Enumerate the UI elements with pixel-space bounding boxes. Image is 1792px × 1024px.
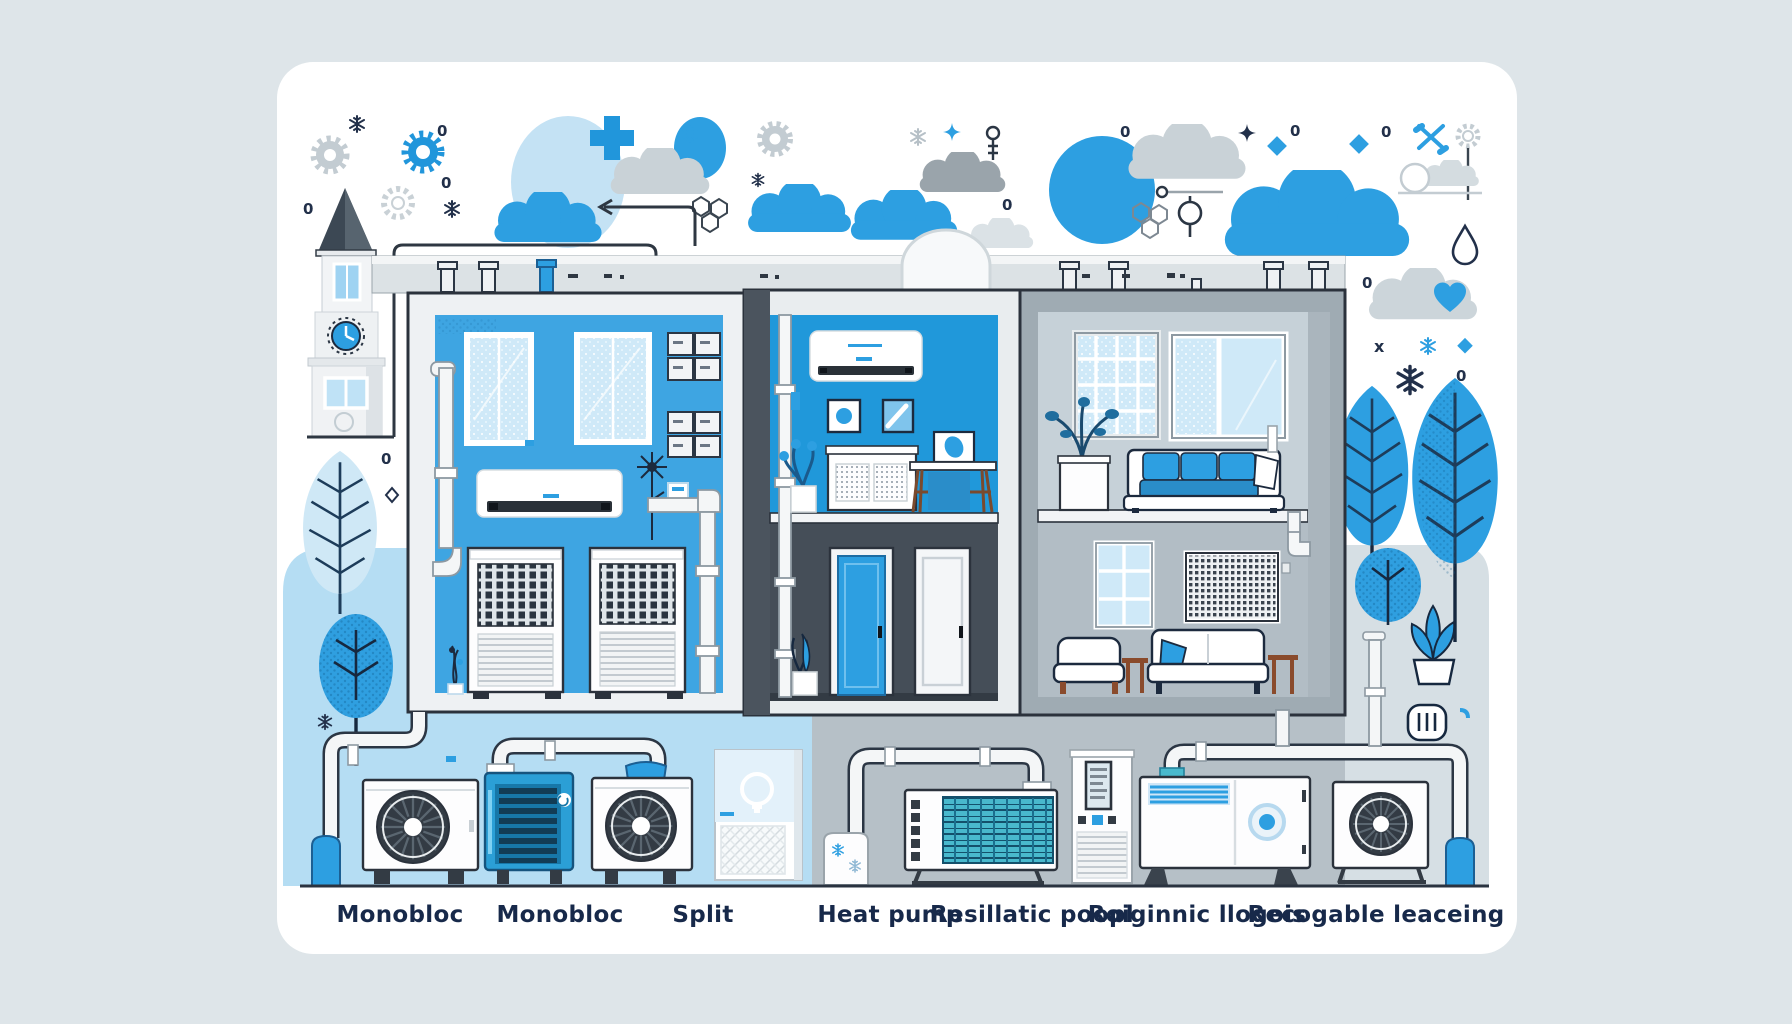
control-tower-unit	[1070, 750, 1134, 883]
indoor-outdoor-unit	[590, 548, 685, 699]
zero-glyph: 0	[1362, 274, 1372, 292]
heat-pump-infographic: 0 0 0 0 0 0 0 0 0 0 x	[0, 0, 1792, 1024]
roof-highlight	[372, 256, 1345, 264]
zero-glyph: 0	[303, 200, 313, 218]
window	[577, 335, 649, 442]
zero-glyph: 0	[441, 174, 451, 192]
pump-tank	[1446, 838, 1474, 886]
split-wall-ac-unit	[810, 331, 922, 381]
indoor-outdoor-unit	[468, 548, 563, 699]
split-outdoor-unit	[592, 778, 692, 884]
chair	[928, 472, 970, 510]
right-side-band	[1308, 312, 1330, 697]
cabinet	[826, 446, 918, 510]
picture-frame	[883, 400, 913, 432]
section-monobloc	[408, 293, 744, 712]
zero-glyph: 0	[1290, 122, 1300, 140]
gear-icon	[760, 124, 790, 154]
label-monobloc-2: Monobloc	[496, 902, 623, 928]
window-large	[1172, 335, 1285, 438]
hydro-cabinet-unit	[715, 750, 802, 880]
zero-glyph: 0	[381, 450, 391, 468]
label-recogable: Recogable leaceing	[1247, 902, 1504, 928]
roof-pipe-arch	[902, 230, 990, 292]
monobloc-unit-blue	[485, 773, 573, 884]
x-glyph: x	[1374, 337, 1385, 356]
vent-grille	[1186, 553, 1290, 621]
pillow	[1254, 455, 1278, 489]
zero-glyph: 0	[1002, 196, 1012, 214]
pump-tank	[312, 836, 340, 886]
building	[372, 230, 1345, 715]
window-grid	[1075, 333, 1158, 437]
middle-floor	[770, 513, 998, 523]
door-white	[915, 548, 970, 695]
zero-glyph: 0	[1381, 123, 1391, 141]
outdoor-fan-unit	[1333, 782, 1428, 883]
label-split: Split	[672, 902, 733, 928]
right-floor	[1038, 510, 1308, 522]
hydro-module-unit	[1140, 777, 1310, 885]
section-rooms	[1020, 290, 1345, 715]
candle	[1268, 426, 1277, 452]
label-monobloc-1: Monobloc	[336, 902, 463, 928]
wall-ac-unit	[477, 470, 622, 517]
monobloc-unit	[363, 780, 478, 884]
door-blue	[830, 548, 893, 695]
section-split	[744, 290, 1020, 715]
window-small	[1096, 543, 1152, 627]
buffer-tank	[824, 833, 868, 885]
illustration-stage: 0 0 0 0 0 0 0 0 0 0 x	[0, 0, 1792, 1024]
picture-frame	[828, 400, 860, 432]
zero-glyph: 0	[437, 122, 447, 140]
bottom-labels: Monobloc Monobloc Split Heat pump Resill…	[336, 902, 1504, 928]
middle-divider-wall	[744, 290, 770, 715]
heat-pump-unit	[905, 790, 1057, 885]
window	[467, 335, 534, 446]
zero-glyph: 0	[1120, 123, 1130, 141]
